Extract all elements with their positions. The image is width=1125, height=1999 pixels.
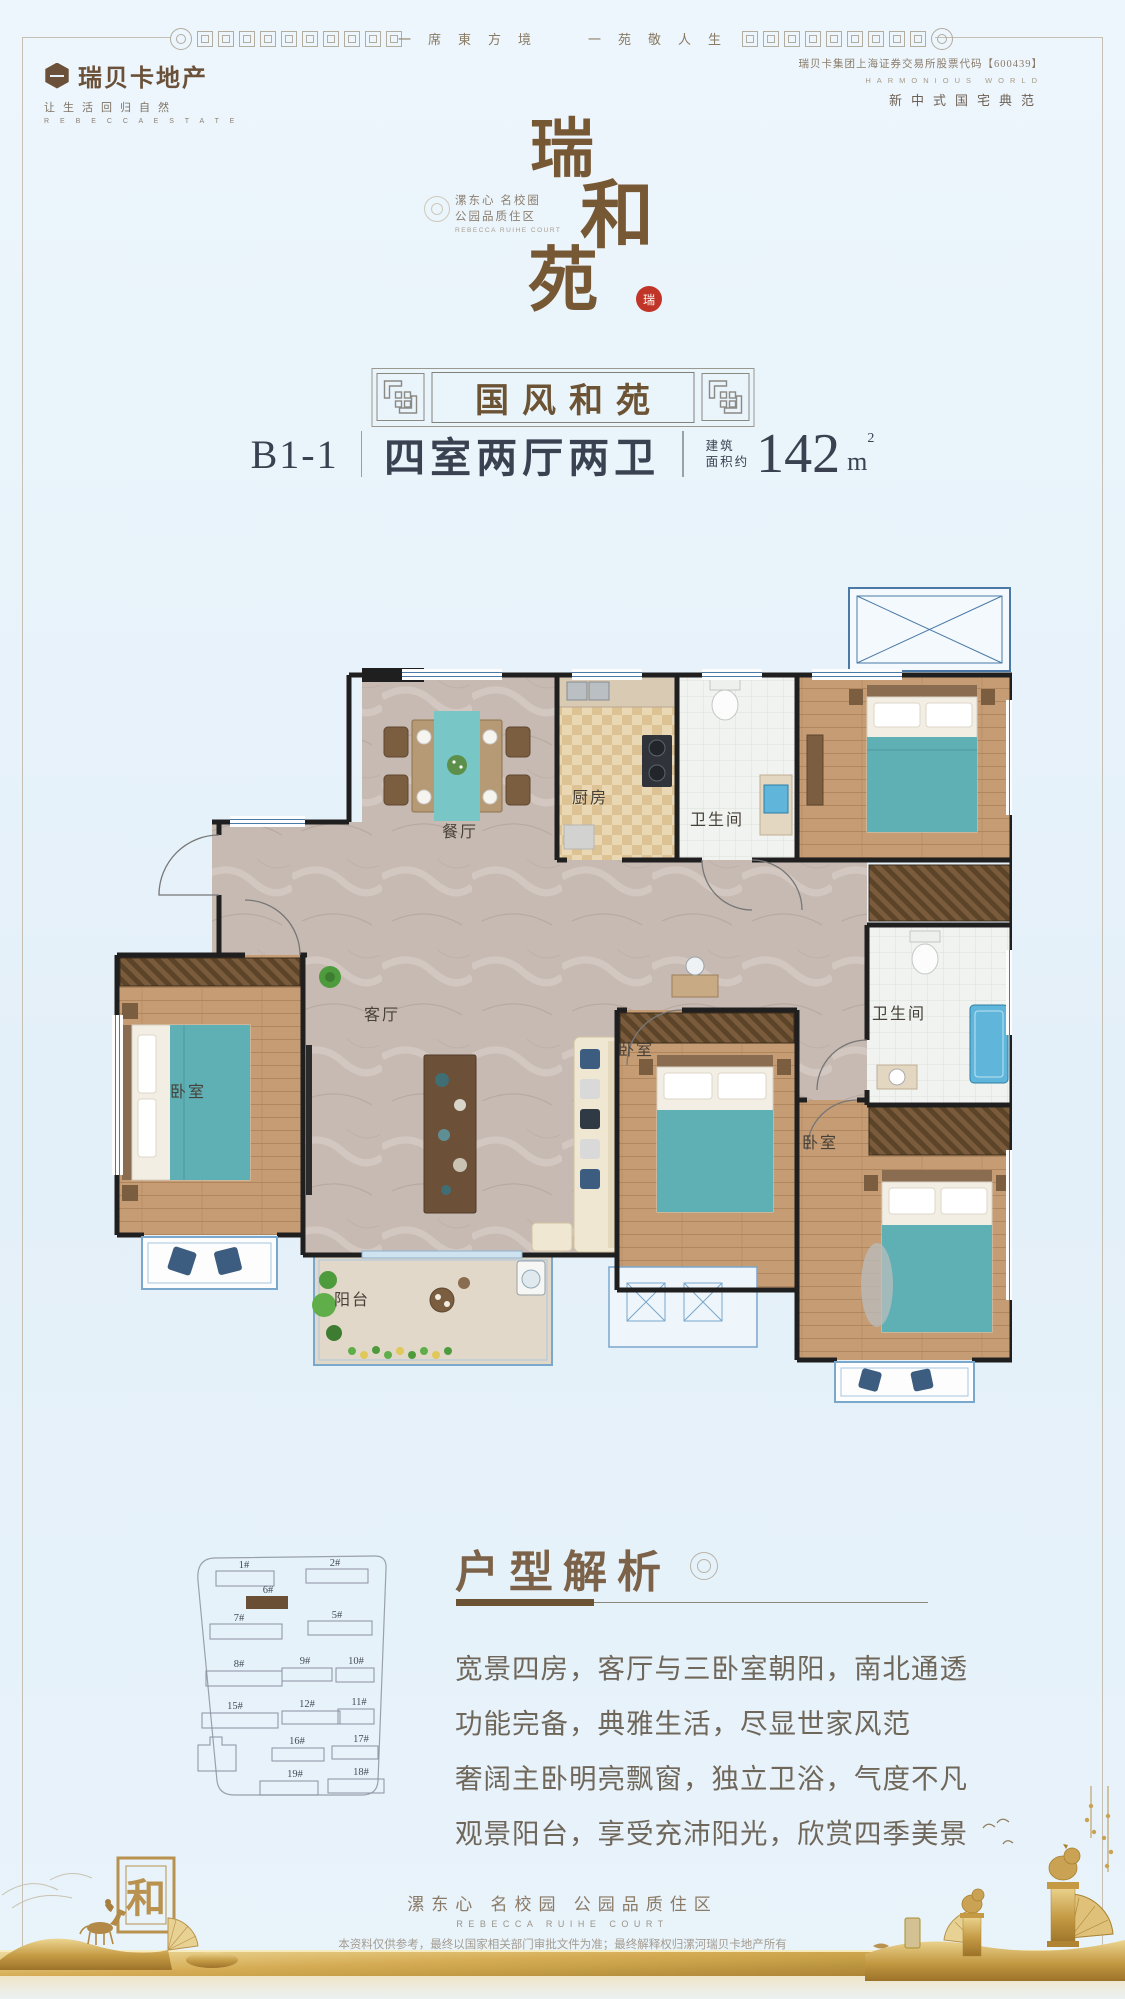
ornament-chain-right <box>742 28 953 50</box>
analysis-underline-accent <box>456 1599 594 1606</box>
svg-text:5#: 5# <box>332 1610 343 1621</box>
series-title-box: 国风和苑 <box>371 368 754 427</box>
site-plan: 1# 2# 6# 7# 5# 8# 9# 10# 15# 12# 11# 16#… <box>182 1545 397 1815</box>
label-living: 客厅 <box>364 1006 400 1024</box>
lattice-icon <box>847 31 863 47</box>
brand-slogan-line1: 漯东心 名校圈 <box>455 193 561 209</box>
label-bedroom-right: 卧室 <box>802 1134 838 1152</box>
branch-icon <box>2 1873 92 1908</box>
gold-mound <box>0 1939 172 1970</box>
red-seal: 瑞 <box>636 286 662 312</box>
lattice-icon <box>868 31 884 47</box>
label-bedroom-left: 卧室 <box>170 1083 206 1101</box>
publisher-tagline: 让生活回归自然 <box>44 99 239 115</box>
publisher-logo: 瑞贝卡地产 让生活回归自然 R E B E C C A E S T A T E <box>44 58 239 125</box>
label-balcony: 阳台 <box>334 1291 370 1309</box>
harmonious-world-en: HARMONIOUS WORLD <box>799 76 1044 85</box>
unlabeled-building <box>198 1737 236 1771</box>
tv-screen <box>306 1045 312 1195</box>
lattice-panel-icon <box>375 372 425 422</box>
lattice-icon <box>826 31 842 47</box>
gold-mound <box>186 1952 238 1968</box>
unit-area: 建筑 面积约 142 m2 <box>706 422 875 486</box>
bed-right <box>861 1170 1010 1332</box>
medallion-icon <box>170 28 192 50</box>
svg-text:8#: 8# <box>234 1659 245 1670</box>
branch-blossoms <box>1085 1804 1113 1868</box>
svg-text:6#: 6# <box>263 1585 274 1596</box>
stock-code-line: 瑞贝卡集团上海证券交易所股票代码【600439】 <box>799 56 1044 71</box>
gold-mound <box>865 1940 1125 1981</box>
lattice-icon <box>742 31 758 47</box>
area-unit: m2 <box>847 431 874 477</box>
lion-statue-icon <box>1047 1844 1080 1947</box>
divider <box>361 431 363 477</box>
he-character-frame: 和 <box>118 1858 174 1932</box>
lattice-icon <box>260 31 276 47</box>
frame-top-line-left <box>22 37 170 38</box>
bay-window-left <box>142 1237 277 1289</box>
svg-text:1#: 1# <box>239 1560 250 1571</box>
svg-text:18#: 18# <box>353 1767 370 1778</box>
medallion-icon <box>931 28 953 50</box>
birds-icon <box>983 1819 1013 1844</box>
lattice-icon <box>365 31 381 47</box>
lattice-icon <box>889 31 905 47</box>
bed-center <box>639 1055 791 1212</box>
label-bath-right: 卫生间 <box>872 1005 926 1023</box>
highlighted-building <box>246 1596 288 1609</box>
label-dining: 餐厅 <box>442 823 478 841</box>
balcony-glass-door <box>362 1251 522 1258</box>
analysis-line-2: 功能完备，典雅生活，尽显世家风范 <box>455 1696 968 1751</box>
publisher-name: 瑞贝卡地产 <box>78 58 208 93</box>
lattice-icon <box>281 31 297 47</box>
lattice-icon <box>239 31 255 47</box>
frame-right-line <box>1102 37 1103 1953</box>
lattice-icon <box>302 31 318 47</box>
area-number: 142 <box>756 422 840 486</box>
hanging-branch-icon <box>1091 1786 1108 1872</box>
svg-text:15#: 15# <box>227 1701 244 1712</box>
rosette-icon <box>690 1552 718 1580</box>
label-bedroom-center: 卧室 <box>618 1041 654 1059</box>
floor-plan: 餐厅 厨房 卫生间 客厅 卧室 卧室 卧室 卫生间 阳台 <box>112 585 1012 1405</box>
brand-sub-slogan: 漯东心 名校圈 公园品质住区 REBECCA RUIHE COURT <box>455 193 561 234</box>
lattice-icon <box>197 31 213 47</box>
svg-text:19#: 19# <box>287 1769 304 1780</box>
brand-slogan-line2: 公园品质住区 <box>455 209 561 225</box>
console-table <box>672 975 718 997</box>
area-label-1: 建筑 <box>706 438 750 454</box>
light-well <box>609 1267 757 1347</box>
svg-text:16#: 16# <box>289 1736 306 1747</box>
lion-statue-icon <box>960 1889 984 1956</box>
svg-text:2#: 2# <box>330 1558 341 1569</box>
unit-spec-row: B1-1 四室两厅两卫 建筑 面积约 142 m2 <box>0 422 1125 486</box>
listing-info: 瑞贝卡集团上海证券交易所股票代码【600439】 HARMONIOUS WORL… <box>799 56 1044 109</box>
frame-left-line <box>22 37 23 1953</box>
label-bath-top: 卫生间 <box>690 811 744 829</box>
publisher-name-en: R E B E C C A E S T A T E <box>44 118 239 125</box>
gold-ornament-right <box>865 1786 1125 1981</box>
lattice-icon <box>763 31 779 47</box>
svg-text:11#: 11# <box>351 1697 367 1708</box>
frame-top-line-right <box>935 37 1103 38</box>
brand-char-3: 苑 <box>528 224 598 325</box>
fan-icon <box>168 1918 198 1950</box>
svg-text:和: 和 <box>126 1876 166 1921</box>
positioning-line: 新中式国宅典范 <box>799 90 1044 109</box>
brand-slogan-en: REBECCA RUIHE COURT <box>455 227 561 234</box>
analysis-line-1: 宽景四房，客厅与三卧室朝阳，南北通透 <box>455 1641 968 1696</box>
svg-text:12#: 12# <box>299 1699 316 1710</box>
divider <box>682 431 684 477</box>
lattice-icon <box>218 31 234 47</box>
poster-page: 一席東方境 一苑敬人生 瑞贝卡地产 让生活回归自然 R E B E C C A … <box>0 0 1125 1999</box>
lattice-panel-icon <box>700 372 750 422</box>
lattice-icon <box>323 31 339 47</box>
site-buildings <box>198 1569 384 1795</box>
label-kitchen: 厨房 <box>572 789 608 807</box>
lattice-icon <box>344 31 360 47</box>
hexagon-logo-icon <box>44 63 70 89</box>
site-building-labels: 1# 2# 6# 7# 5# 8# 9# 10# 15# 12# 11# 16#… <box>227 1558 370 1780</box>
gold-ornament-left: 和 <box>0 1840 240 1980</box>
ornament-chain-left <box>170 28 402 50</box>
armchair <box>532 1223 572 1251</box>
bay-window-right <box>835 1362 974 1402</box>
header-motto-left: 一席東方境 <box>398 29 548 48</box>
bed-left <box>122 1003 250 1201</box>
stone-marker <box>905 1918 920 1948</box>
brand-medallion-icon <box>424 196 450 222</box>
elevator-shaft <box>849 588 1010 671</box>
svg-text:17#: 17# <box>353 1734 370 1745</box>
area-label-2: 面积约 <box>706 454 750 470</box>
lattice-icon <box>910 31 926 47</box>
svg-text:9#: 9# <box>300 1656 311 1667</box>
series-title: 国风和苑 <box>431 372 694 423</box>
svg-text:7#: 7# <box>234 1613 245 1624</box>
analysis-title: 户型解析 <box>455 1536 671 1600</box>
lattice-icon <box>805 31 821 47</box>
lattice-icon <box>784 31 800 47</box>
unit-rooms: 四室两厅两卫 <box>384 424 660 484</box>
svg-text:10#: 10# <box>348 1656 365 1667</box>
unit-code: B1-1 <box>251 431 339 478</box>
header-motto-right: 一苑敬人生 <box>588 29 738 48</box>
